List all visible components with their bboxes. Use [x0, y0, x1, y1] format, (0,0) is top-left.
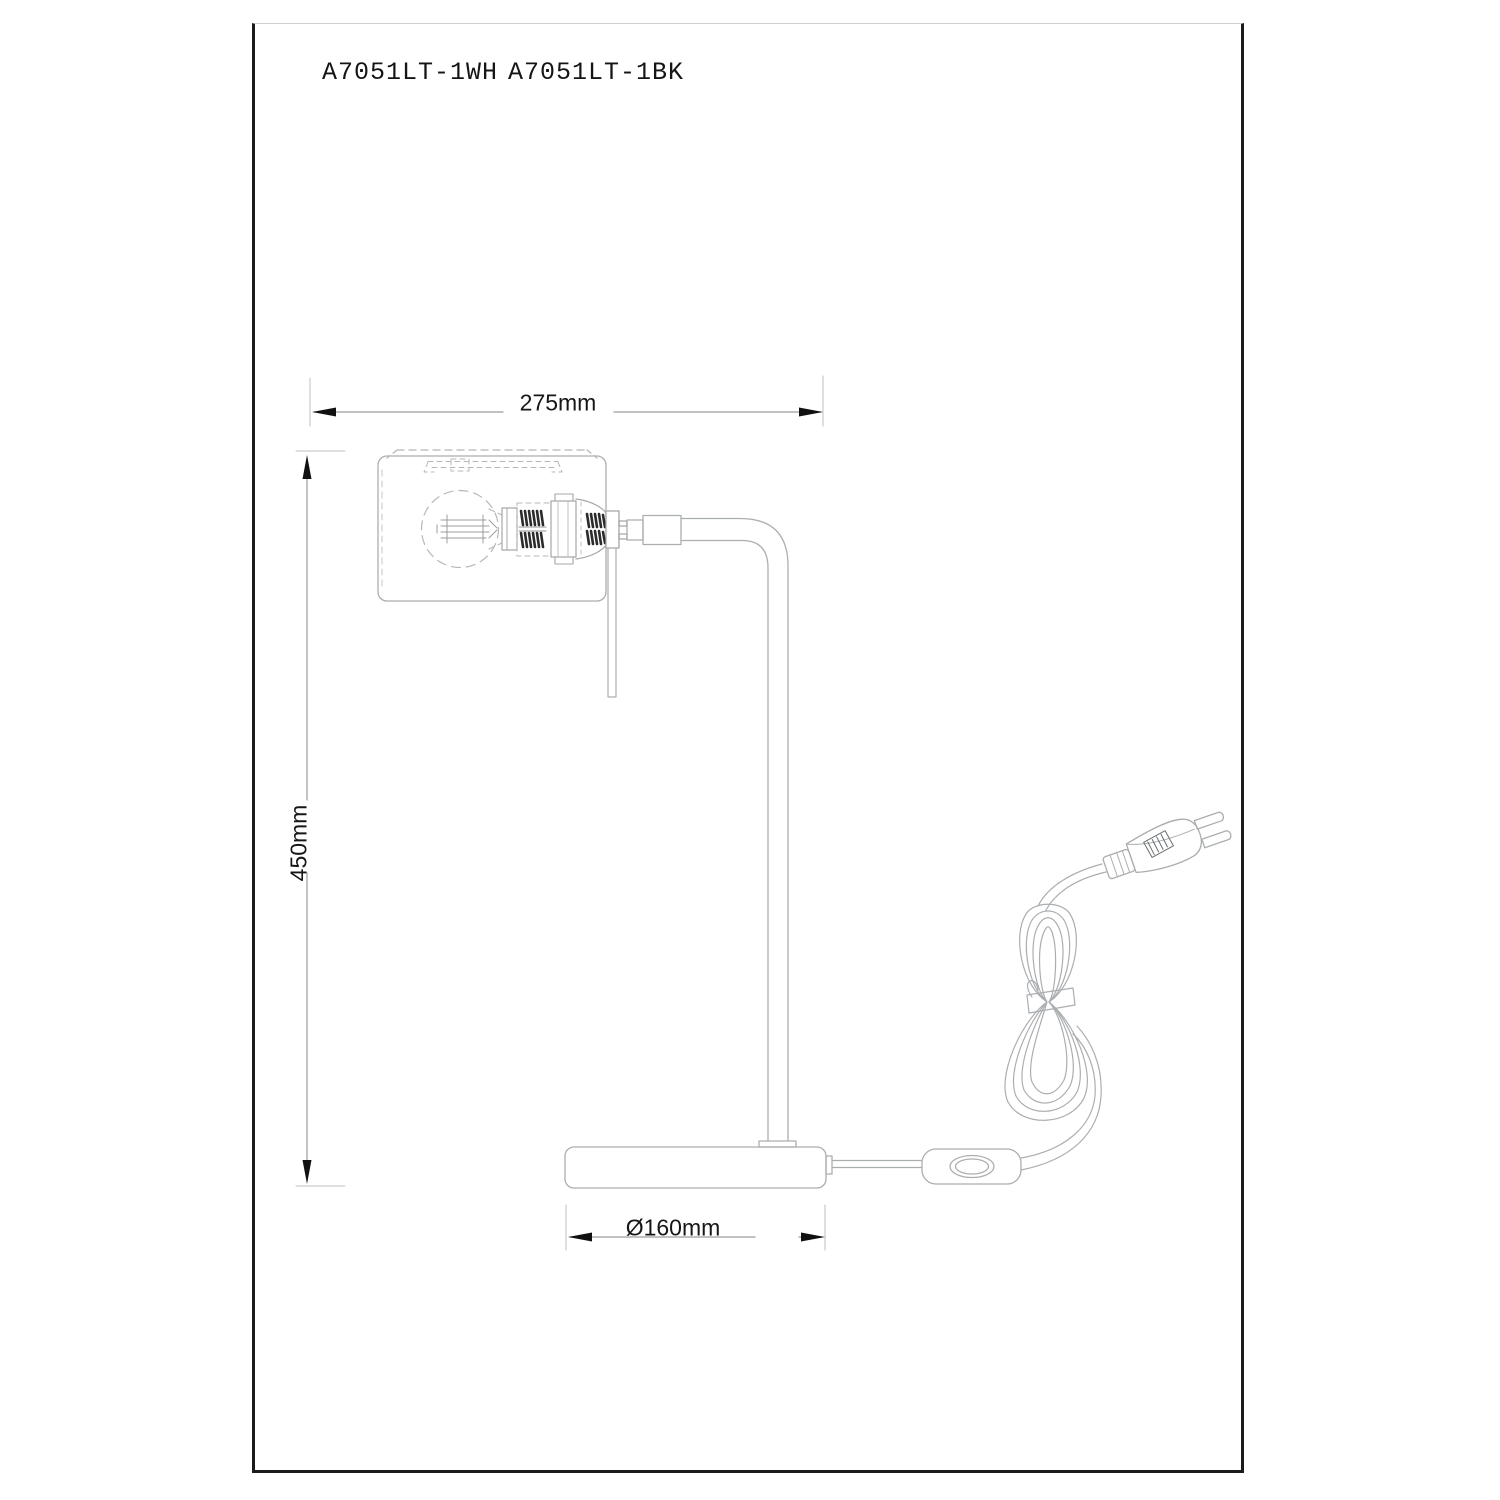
arrow-down	[303, 1160, 312, 1184]
lamp-technical-drawing	[0, 0, 1500, 1500]
drawing-sheet: A7051LT-1WH A7051LT-1BK	[0, 0, 1500, 1500]
plug-body	[1124, 814, 1207, 878]
filament-bulb	[422, 491, 505, 568]
base-diameter-label: Ø160mm	[626, 1215, 721, 1242]
height-dimension-label: 450mm	[286, 805, 313, 882]
lamp-base	[565, 1147, 832, 1188]
socket-threads	[521, 511, 543, 547]
width-dimension-label: 275mm	[520, 390, 597, 417]
shade-mounting-bracket	[424, 459, 562, 472]
swivel-bracket	[606, 511, 627, 548]
lamp-arm	[627, 516, 796, 1148]
bulb-cap	[502, 508, 517, 550]
bulb-glass	[422, 491, 499, 568]
bulb-filament	[437, 515, 497, 543]
plug-label-hatch	[1142, 830, 1174, 859]
plug-pins	[1194, 811, 1232, 848]
support-rod	[608, 548, 616, 697]
bulb-socket	[502, 494, 607, 564]
arrow-left	[568, 1233, 592, 1242]
rear-threads	[587, 514, 605, 544]
arrow-left	[312, 408, 336, 417]
arrow-up	[303, 455, 312, 479]
euro-plug	[1098, 804, 1234, 886]
plug-cord-collar	[1102, 849, 1135, 880]
cord-coil	[1005, 904, 1087, 1120]
arrow-right	[801, 1233, 825, 1242]
power-cord	[832, 864, 1106, 1170]
arrow-right	[799, 408, 823, 417]
inline-switch	[922, 1149, 1021, 1184]
